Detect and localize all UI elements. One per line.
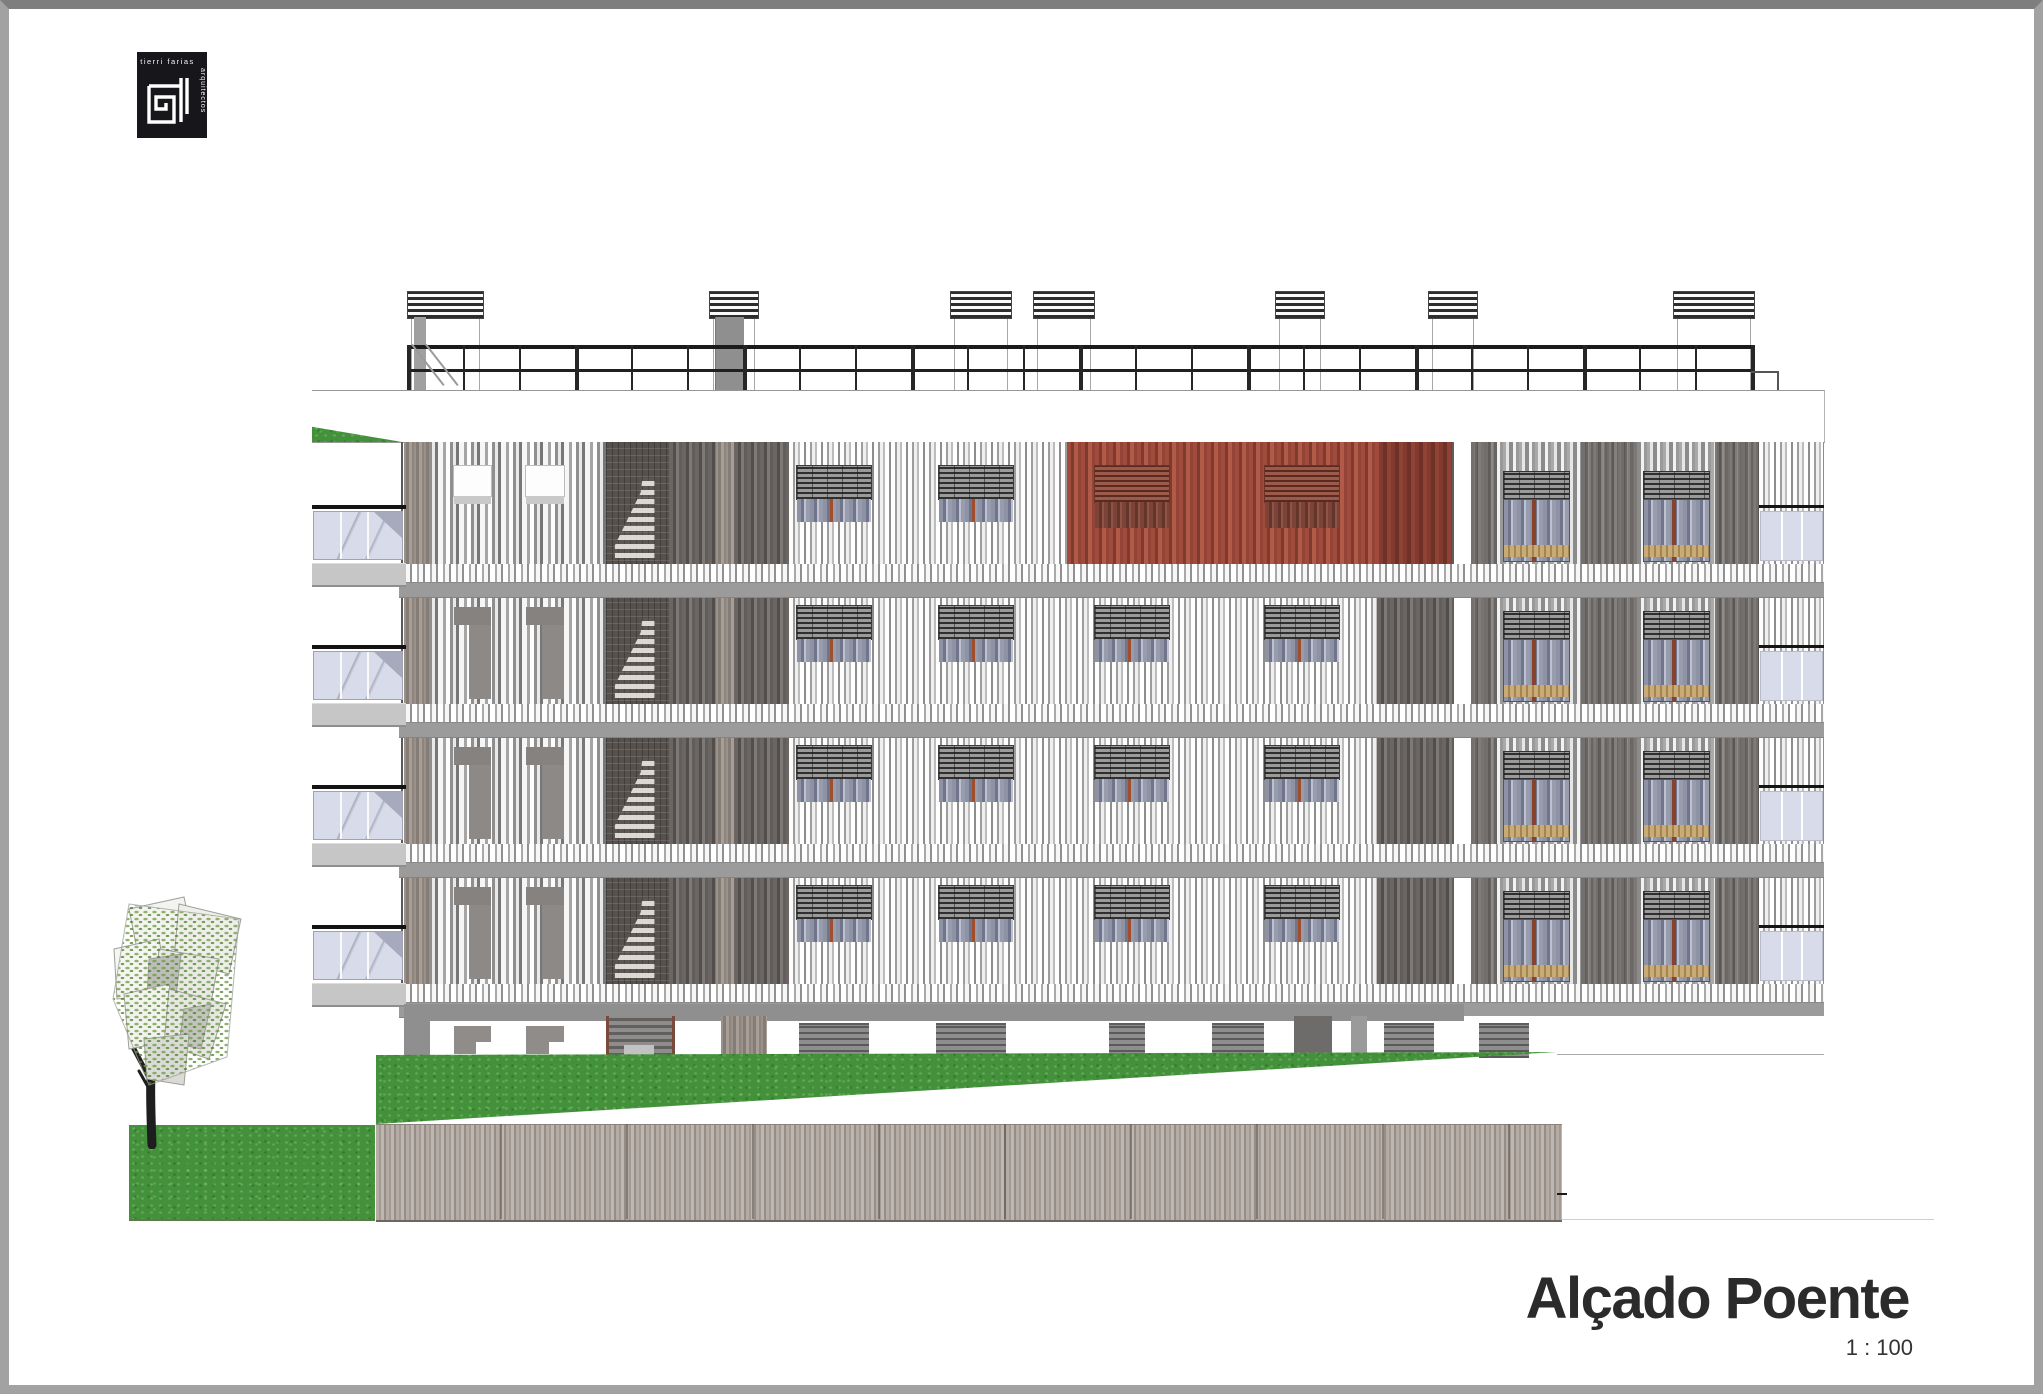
roof-railing-post bbox=[799, 345, 801, 390]
small-window-sill bbox=[526, 496, 564, 504]
right-balcony-glass bbox=[1761, 652, 1822, 700]
large-window bbox=[1504, 892, 1569, 920]
ground-relief-notch bbox=[476, 1042, 491, 1054]
shutter-panel-bar bbox=[542, 625, 564, 699]
window-curtain-rod bbox=[1298, 779, 1301, 802]
shutter-panel bbox=[454, 607, 491, 625]
ground-reference-line bbox=[1562, 1219, 1934, 1220]
shutter-panel-bar bbox=[469, 905, 491, 979]
chimney-body bbox=[1279, 315, 1321, 392]
window-curtain-rod bbox=[830, 499, 833, 522]
chimney-flue bbox=[715, 317, 744, 390]
shutter-panel bbox=[454, 747, 491, 765]
louvre-window bbox=[939, 886, 1013, 919]
balcony-slab bbox=[312, 843, 406, 867]
large-window-blind bbox=[1644, 685, 1709, 697]
window-curtain bbox=[1095, 919, 1169, 942]
window-curtain-rod bbox=[1128, 639, 1131, 662]
shutter-panel-bar bbox=[542, 765, 564, 839]
roof-railing-end-detail bbox=[1751, 371, 1779, 373]
roof-railing-post bbox=[1135, 345, 1137, 390]
louvre-window bbox=[939, 746, 1013, 779]
chimney-body bbox=[1677, 315, 1751, 392]
right-balcony-mullion bbox=[1801, 932, 1803, 980]
balcony-rail bbox=[312, 785, 406, 789]
shutter-panel bbox=[454, 887, 491, 905]
roof-railing-post bbox=[1695, 345, 1697, 390]
right-balcony-mullion bbox=[1801, 512, 1803, 560]
floor-slab-band bbox=[399, 722, 1824, 738]
window-curtain-rod bbox=[972, 639, 975, 662]
shutter-panel-bar bbox=[542, 905, 564, 979]
open-slat-band bbox=[399, 704, 1824, 722]
balcony-mullion bbox=[367, 652, 369, 699]
right-balcony-mullion bbox=[1801, 792, 1803, 840]
chimney-cap bbox=[950, 291, 1012, 319]
roof-railing-post bbox=[967, 345, 969, 390]
window-curtain bbox=[1265, 919, 1339, 942]
ground-pilaster bbox=[1351, 1016, 1367, 1056]
window-curtain bbox=[797, 639, 871, 662]
drawing-scale: 1 : 100 bbox=[1846, 1335, 1913, 1361]
window-curtain bbox=[939, 919, 1013, 942]
roof-railing-post bbox=[631, 345, 633, 390]
chimney-cap bbox=[407, 291, 484, 319]
window-curtain-rod bbox=[830, 919, 833, 942]
roof-railing-post bbox=[407, 345, 411, 390]
roof-railing-post bbox=[743, 345, 747, 390]
shutter-panel bbox=[526, 887, 564, 905]
louvre-window bbox=[1095, 606, 1169, 639]
balcony-rail bbox=[312, 925, 406, 929]
roof-railing-post bbox=[911, 345, 915, 390]
large-window bbox=[1644, 892, 1709, 920]
louvre-window bbox=[797, 746, 871, 779]
window-curtain bbox=[939, 639, 1013, 662]
balcony-rail bbox=[312, 505, 406, 509]
right-balcony-glass bbox=[1761, 512, 1822, 560]
large-window-blind bbox=[1504, 825, 1569, 837]
window-curtain bbox=[1265, 639, 1339, 662]
roof-railing-post bbox=[575, 345, 579, 390]
right-balcony-rail bbox=[1759, 645, 1824, 648]
louvre-window bbox=[1095, 886, 1169, 919]
right-balcony-mullion bbox=[1781, 792, 1783, 840]
roof-railing-post bbox=[519, 345, 521, 390]
roof-railing-post bbox=[1415, 345, 1419, 390]
chimney-cap bbox=[1673, 291, 1755, 319]
balcony-mullion bbox=[367, 932, 369, 979]
small-window bbox=[526, 466, 564, 496]
louvre-window bbox=[1265, 746, 1339, 779]
window-curtain-rod bbox=[972, 779, 975, 802]
balcony-mullion bbox=[340, 932, 342, 979]
roof-railing-post bbox=[1191, 345, 1193, 390]
roof-railing-post bbox=[1527, 345, 1529, 390]
small-window-sill bbox=[454, 496, 491, 504]
chimney-cap bbox=[709, 291, 759, 319]
window-curtain-rod bbox=[1298, 919, 1301, 942]
red-accent-panel-dark bbox=[1379, 442, 1452, 565]
building-base-line bbox=[1557, 1054, 1824, 1055]
window-curtain-rod bbox=[1298, 639, 1301, 662]
roof-railing-post bbox=[463, 345, 465, 390]
chimney-body bbox=[1432, 315, 1474, 392]
shutter-panel bbox=[526, 607, 564, 625]
ground-vent-louvre bbox=[936, 1023, 1006, 1058]
red-louvre-window bbox=[1265, 466, 1339, 502]
roof-railing-post bbox=[1359, 345, 1361, 390]
roof-slab bbox=[312, 390, 1825, 443]
chimney-cap bbox=[1033, 291, 1095, 319]
large-window-blind bbox=[1644, 545, 1709, 557]
red-window-curtain bbox=[1095, 502, 1169, 528]
louvre-window bbox=[1265, 886, 1339, 919]
shutter-panel-bar bbox=[469, 625, 491, 699]
window-curtain bbox=[1095, 639, 1169, 662]
balcony-slab bbox=[312, 563, 406, 587]
open-slat-band bbox=[399, 984, 1824, 1002]
ground-vent-louvre bbox=[1109, 1023, 1145, 1058]
chimney-cap bbox=[1428, 291, 1478, 319]
right-balcony-mullion bbox=[1781, 652, 1783, 700]
louvre-window bbox=[1265, 606, 1339, 639]
window-curtain bbox=[1265, 779, 1339, 802]
window-curtain-rod bbox=[830, 779, 833, 802]
shutter-panel bbox=[526, 747, 564, 765]
balcony-slab bbox=[312, 983, 406, 1007]
louvre-window bbox=[797, 886, 871, 919]
large-window-blind bbox=[1504, 545, 1569, 557]
large-window-blind bbox=[1504, 685, 1569, 697]
facade-right-edge bbox=[1823, 442, 1824, 1054]
window-curtain bbox=[797, 779, 871, 802]
balcony-slab bbox=[312, 703, 406, 727]
red-louvre-window bbox=[1095, 466, 1169, 502]
open-slat-band bbox=[399, 844, 1824, 862]
right-balcony-rail bbox=[1759, 505, 1824, 508]
survey-tick bbox=[1557, 1193, 1567, 1195]
roof-railing-post bbox=[687, 345, 689, 390]
right-balcony-mullion bbox=[1781, 512, 1783, 560]
roof-railing-post bbox=[1471, 345, 1473, 390]
window-curtain bbox=[1095, 779, 1169, 802]
roof-railing-end-detail bbox=[1777, 371, 1779, 390]
window-curtain bbox=[797, 499, 871, 522]
window-curtain bbox=[939, 499, 1013, 522]
floor-slab-band bbox=[399, 862, 1824, 878]
shutter-panel-bar bbox=[469, 765, 491, 839]
window-curtain bbox=[797, 919, 871, 942]
retaining-wall-joints bbox=[376, 1124, 1562, 1219]
red-window-curtain bbox=[1265, 502, 1339, 528]
balcony-mullion bbox=[367, 512, 369, 559]
window-curtain-rod bbox=[1128, 779, 1131, 802]
louvre-window bbox=[1095, 746, 1169, 779]
chimney-body bbox=[954, 315, 1008, 392]
large-window bbox=[1644, 752, 1709, 780]
right-balcony-rail bbox=[1759, 925, 1824, 928]
right-balcony-rail bbox=[1759, 785, 1824, 788]
window-curtain-rod bbox=[972, 919, 975, 942]
window-curtain-rod bbox=[972, 499, 975, 522]
ground-dark-pillar bbox=[1294, 1016, 1332, 1056]
open-slat-band bbox=[399, 564, 1824, 582]
balcony-mullion bbox=[340, 792, 342, 839]
right-balcony-glass bbox=[1761, 932, 1822, 980]
roof-railing-post bbox=[1751, 345, 1755, 390]
window-curtain bbox=[939, 779, 1013, 802]
right-balcony-mullion bbox=[1801, 652, 1803, 700]
window-curtain-rod bbox=[1128, 919, 1131, 942]
balcony-mullion bbox=[367, 792, 369, 839]
louvre-window bbox=[939, 466, 1013, 499]
tree bbox=[89, 889, 269, 1149]
large-window bbox=[1644, 472, 1709, 500]
louvre-window bbox=[797, 466, 871, 499]
roof-railing-post bbox=[1023, 345, 1025, 390]
roof-railing-post bbox=[1079, 345, 1083, 390]
tree-foliage bbox=[113, 897, 241, 1085]
ground-relief-notch bbox=[549, 1042, 564, 1054]
large-window bbox=[1644, 612, 1709, 640]
floor-slab-band bbox=[399, 582, 1824, 598]
ground-vent-louvre bbox=[799, 1023, 869, 1058]
balcony-rail bbox=[312, 645, 406, 649]
chimney-cap bbox=[1275, 291, 1325, 319]
ground-vent-louvre bbox=[1212, 1023, 1264, 1058]
roof-railing-post bbox=[1247, 345, 1251, 390]
roof-railing-post bbox=[1303, 345, 1305, 390]
balcony-mullion bbox=[340, 652, 342, 699]
drawing-sheet: tierri farias arquitectos bbox=[0, 0, 2043, 1394]
small-window bbox=[454, 466, 491, 496]
large-window-blind bbox=[1644, 825, 1709, 837]
large-window-blind bbox=[1504, 965, 1569, 977]
right-balcony-glass bbox=[1761, 792, 1822, 840]
right-balcony-mullion bbox=[1781, 932, 1783, 980]
large-window bbox=[1504, 472, 1569, 500]
balcony-mullion bbox=[340, 512, 342, 559]
window-curtain-rod bbox=[830, 639, 833, 662]
louvre-window bbox=[797, 606, 871, 639]
large-window-blind bbox=[1644, 965, 1709, 977]
louvre-window bbox=[939, 606, 1013, 639]
roof-railing-post bbox=[1639, 345, 1641, 390]
elevation-drawing bbox=[9, 9, 2043, 1394]
roof-railing-post bbox=[1583, 345, 1587, 390]
large-window bbox=[1504, 752, 1569, 780]
roof-railing-post bbox=[855, 345, 857, 390]
drawing-title: Alçado Poente bbox=[1526, 1265, 1909, 1332]
large-window bbox=[1504, 612, 1569, 640]
